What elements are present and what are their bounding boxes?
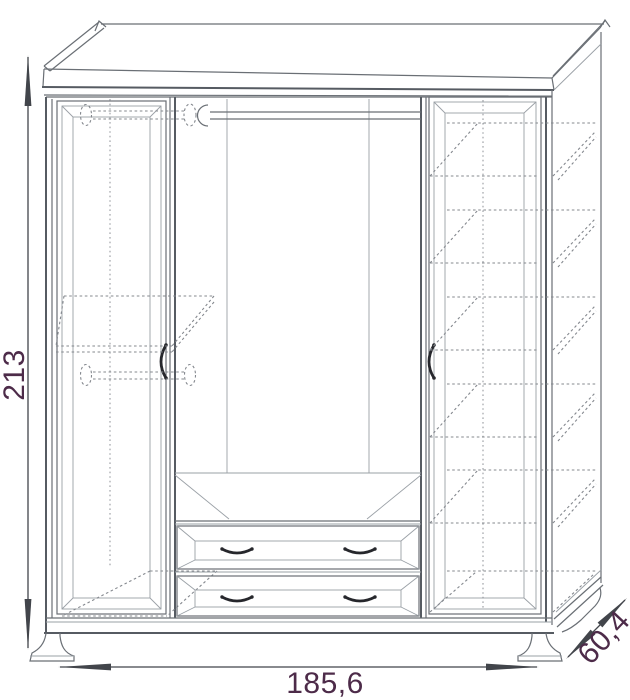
hidden-rod-upper-left xyxy=(81,104,197,126)
left-door xyxy=(57,101,168,614)
width-label: 185,6 xyxy=(286,667,364,700)
left-section-hidden-interior xyxy=(56,99,217,616)
height-label: 213 xyxy=(0,349,31,401)
hidden-shelf-4 xyxy=(430,384,597,441)
carcass-frame xyxy=(44,90,554,633)
right-door xyxy=(429,97,541,614)
middle-compartment xyxy=(175,99,421,521)
hanging-rod xyxy=(198,105,422,126)
dimension-depth: 60,4 xyxy=(566,598,630,671)
wardrobe-technical-drawing: 213 185,6 60,4 xyxy=(0,0,630,700)
depth-label: 60,4 xyxy=(571,604,630,671)
hidden-shelf-2 xyxy=(430,210,597,267)
left-door-handle xyxy=(161,345,166,378)
arrowhead-down xyxy=(25,599,32,650)
hidden-shelf-left xyxy=(56,296,214,352)
right-side-panel xyxy=(554,32,603,632)
arrowhead-left xyxy=(58,664,111,671)
drawer-1-handle-right xyxy=(345,549,375,553)
hidden-shelf-5 xyxy=(430,470,597,527)
hidden-shelf-1 xyxy=(430,123,597,180)
base-feet xyxy=(30,633,562,661)
bracket-foot-right xyxy=(518,633,562,661)
drawer-2-handle-right xyxy=(345,597,375,601)
dimension-width: 185,6 xyxy=(58,664,539,700)
arrowhead-up xyxy=(25,55,32,106)
bracket-foot-left xyxy=(30,633,74,661)
dimension-height: 213 xyxy=(0,55,31,650)
rod-bracket xyxy=(198,105,209,126)
arrowhead-right xyxy=(486,664,539,671)
hidden-rod-lower-left xyxy=(81,365,196,386)
cornice xyxy=(42,20,610,96)
interior-floor xyxy=(175,473,421,521)
right-section-hidden-shelves xyxy=(430,100,597,612)
drawer-2 xyxy=(175,572,421,616)
hidden-floor-right xyxy=(430,571,597,612)
drawer-1 xyxy=(175,524,421,569)
drawer-2-handle-left xyxy=(222,597,252,601)
hidden-shelf-3 xyxy=(430,297,597,354)
drawing-canvas: 213 185,6 60,4 xyxy=(0,0,630,700)
drawer-1-handle-left xyxy=(222,549,252,553)
